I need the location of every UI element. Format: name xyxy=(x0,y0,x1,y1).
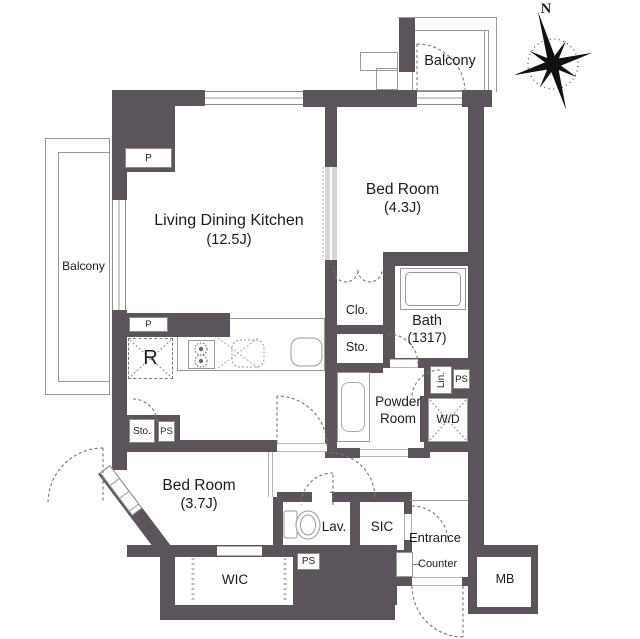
wall xyxy=(330,492,412,502)
pipe-shaft-label: PS xyxy=(302,556,315,567)
wall xyxy=(160,555,175,605)
stove-box xyxy=(188,340,215,369)
pipe-shaft-chip: PS xyxy=(297,553,320,570)
pipe-shaft-chip: PS xyxy=(453,369,470,389)
window xyxy=(417,91,462,105)
wall xyxy=(325,107,337,167)
bedroom-south-door-arc xyxy=(48,448,103,503)
wic-label: WIC xyxy=(177,572,293,589)
pipe-space-label: P xyxy=(145,153,152,164)
counter-label: Counter xyxy=(418,558,462,572)
mb-label: MB xyxy=(478,572,532,588)
wall xyxy=(468,557,477,607)
refrigerator-label: R xyxy=(128,346,173,371)
bedroom-south-size: (3.7J) xyxy=(125,495,273,513)
balcony-top-step xyxy=(376,68,398,90)
pipe-shaft-label: PS xyxy=(160,426,173,437)
ldk-hall-door-arc xyxy=(277,396,327,446)
bedroom-east-name: Bed Room xyxy=(337,180,468,199)
lav-label: Lav. xyxy=(314,519,354,536)
bedroom-south-label: Bed Room (3.7J) xyxy=(125,476,273,514)
pipe-space-chip: P xyxy=(129,317,168,332)
linen-chip: Lin. xyxy=(430,366,452,394)
balcony-top-label: Balcony xyxy=(411,52,489,70)
storage-chip: Sto. xyxy=(129,419,155,443)
ldk-label: Living Dining Kitchen (12.5J) xyxy=(128,211,330,249)
door-opening xyxy=(312,493,332,502)
wall xyxy=(468,90,484,555)
linen-label: Lin. xyxy=(436,372,447,388)
wall xyxy=(325,260,337,300)
compass-north-label: N xyxy=(534,0,558,18)
ldk-name: Living Dining Kitchen xyxy=(128,211,330,231)
closet-label: Clo. xyxy=(332,303,382,319)
counter-box xyxy=(396,552,413,577)
entrance-label: Entrance xyxy=(399,530,471,546)
ldk-size: (12.5J) xyxy=(128,231,330,249)
wall xyxy=(112,172,127,200)
door-opening xyxy=(412,577,462,586)
entrance-step-line xyxy=(410,500,468,501)
balcony-left-label: Balcony xyxy=(56,259,111,274)
bedroom-east-size: (4.3J) xyxy=(337,199,468,217)
bedroom-east-label: Bed Room (4.3J) xyxy=(337,180,468,218)
bedroom-south-name: Bed Room xyxy=(125,476,273,495)
balcony-top-outer-line xyxy=(496,17,497,92)
pipe-space-chip: P xyxy=(125,148,172,168)
storage-label: Sto. xyxy=(133,426,151,437)
pipe-shaft-chip: PS xyxy=(158,421,175,442)
window xyxy=(112,200,126,310)
wall xyxy=(332,325,383,334)
wall xyxy=(383,252,468,266)
wall xyxy=(408,448,430,458)
storage-closet-label: Sto. xyxy=(332,340,382,356)
powder-room-line1: Powder xyxy=(356,394,440,411)
wall xyxy=(303,90,417,107)
bath-name: Bath xyxy=(386,312,468,330)
wall xyxy=(468,545,538,557)
door-opening xyxy=(217,546,262,556)
wall xyxy=(273,497,283,545)
wall xyxy=(531,557,538,607)
wall xyxy=(390,577,412,586)
washer-dryer-label: W/D xyxy=(428,412,468,427)
entrance-door-arc xyxy=(412,586,463,637)
bathtub xyxy=(405,272,461,306)
wall xyxy=(424,442,484,452)
door-opening xyxy=(390,359,418,368)
bath-size: (1317) xyxy=(386,330,468,347)
door-opening xyxy=(360,449,408,457)
door-opening xyxy=(277,443,327,452)
wall xyxy=(112,90,205,106)
window xyxy=(205,91,303,105)
pipe-shaft-label: PS xyxy=(455,374,468,385)
wall xyxy=(468,607,538,614)
pipe-space-label: P xyxy=(145,319,151,330)
bath-label: Bath (1317) xyxy=(386,312,468,347)
wall xyxy=(160,605,395,620)
floor-plan: P P Sto. PS Lin. PS PS xyxy=(0,0,640,639)
wall xyxy=(277,492,312,502)
compass-rose xyxy=(498,0,605,121)
closet-bifold-arc xyxy=(334,270,382,282)
